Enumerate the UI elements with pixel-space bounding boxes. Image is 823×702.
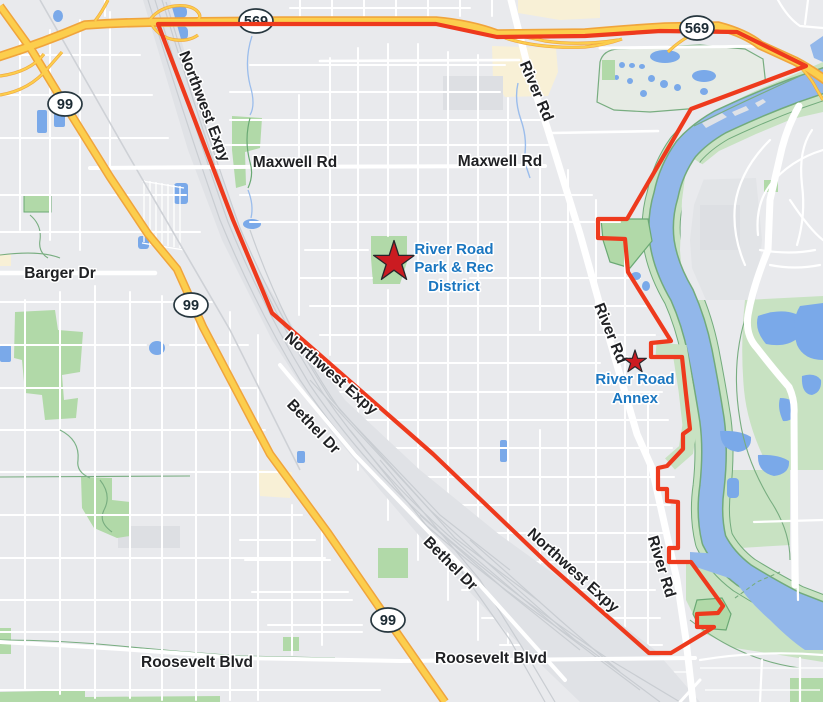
- svg-text:99: 99: [57, 97, 73, 113]
- svg-text:Roosevelt Blvd: Roosevelt Blvd: [141, 654, 253, 671]
- svg-text:Barger Dr: Barger Dr: [24, 265, 96, 282]
- svg-text:Annex: Annex: [612, 390, 659, 407]
- svg-text:99: 99: [380, 613, 396, 629]
- svg-text:River Road: River Road: [414, 241, 493, 258]
- svg-text:Maxwell Rd: Maxwell Rd: [458, 153, 542, 170]
- svg-text:District: District: [428, 278, 480, 295]
- svg-text:Roosevelt Blvd: Roosevelt Blvd: [435, 650, 547, 667]
- svg-text:99: 99: [183, 298, 199, 314]
- svg-text:Park & Rec: Park & Rec: [414, 259, 493, 276]
- svg-text:569: 569: [685, 21, 709, 37]
- svg-text:Maxwell Rd: Maxwell Rd: [253, 154, 337, 171]
- svg-text:River Road: River Road: [595, 371, 674, 388]
